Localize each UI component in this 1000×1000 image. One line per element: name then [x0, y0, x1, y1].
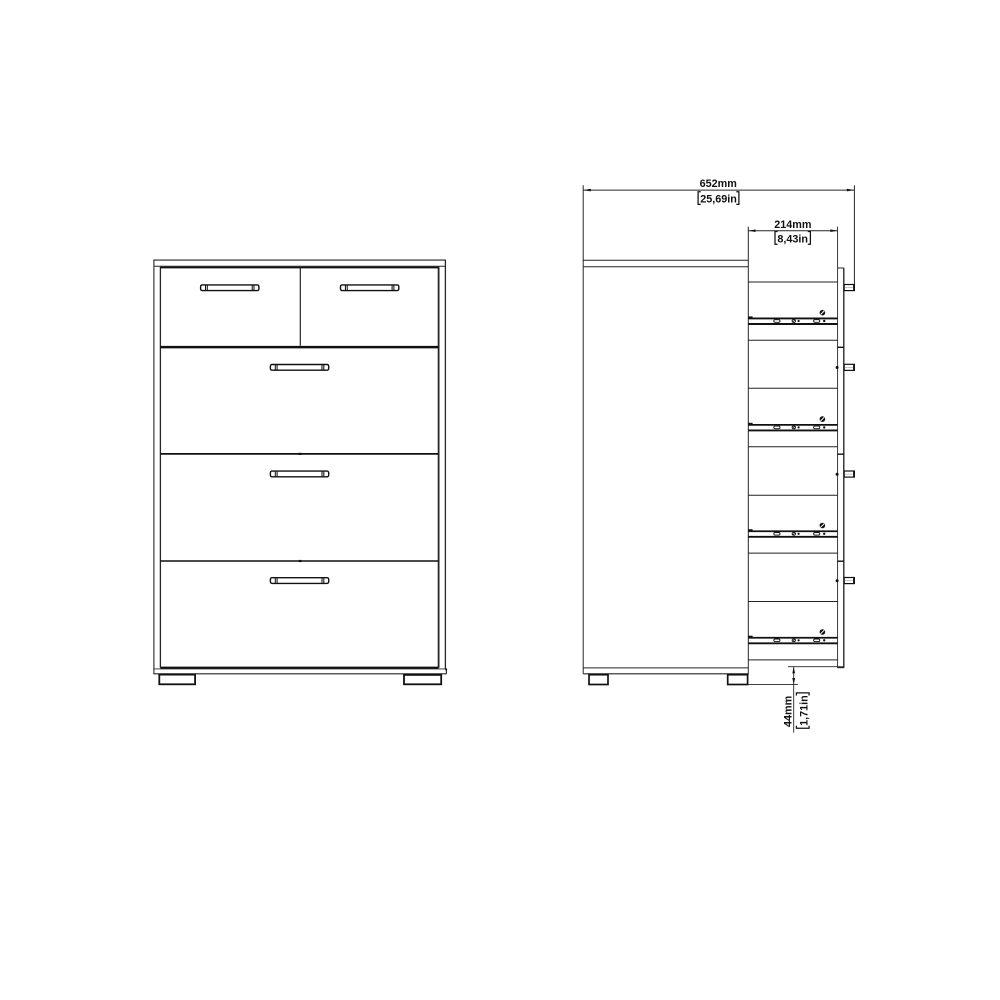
- svg-text:652mm: 652mm: [700, 178, 737, 190]
- svg-text:8,43in: 8,43in: [777, 233, 808, 245]
- svg-text:214mm: 214mm: [774, 219, 811, 231]
- svg-text:25,69in: 25,69in: [700, 194, 737, 206]
- svg-text:44mm: 44mm: [783, 696, 795, 727]
- svg-text:1,71in: 1,71in: [798, 695, 810, 726]
